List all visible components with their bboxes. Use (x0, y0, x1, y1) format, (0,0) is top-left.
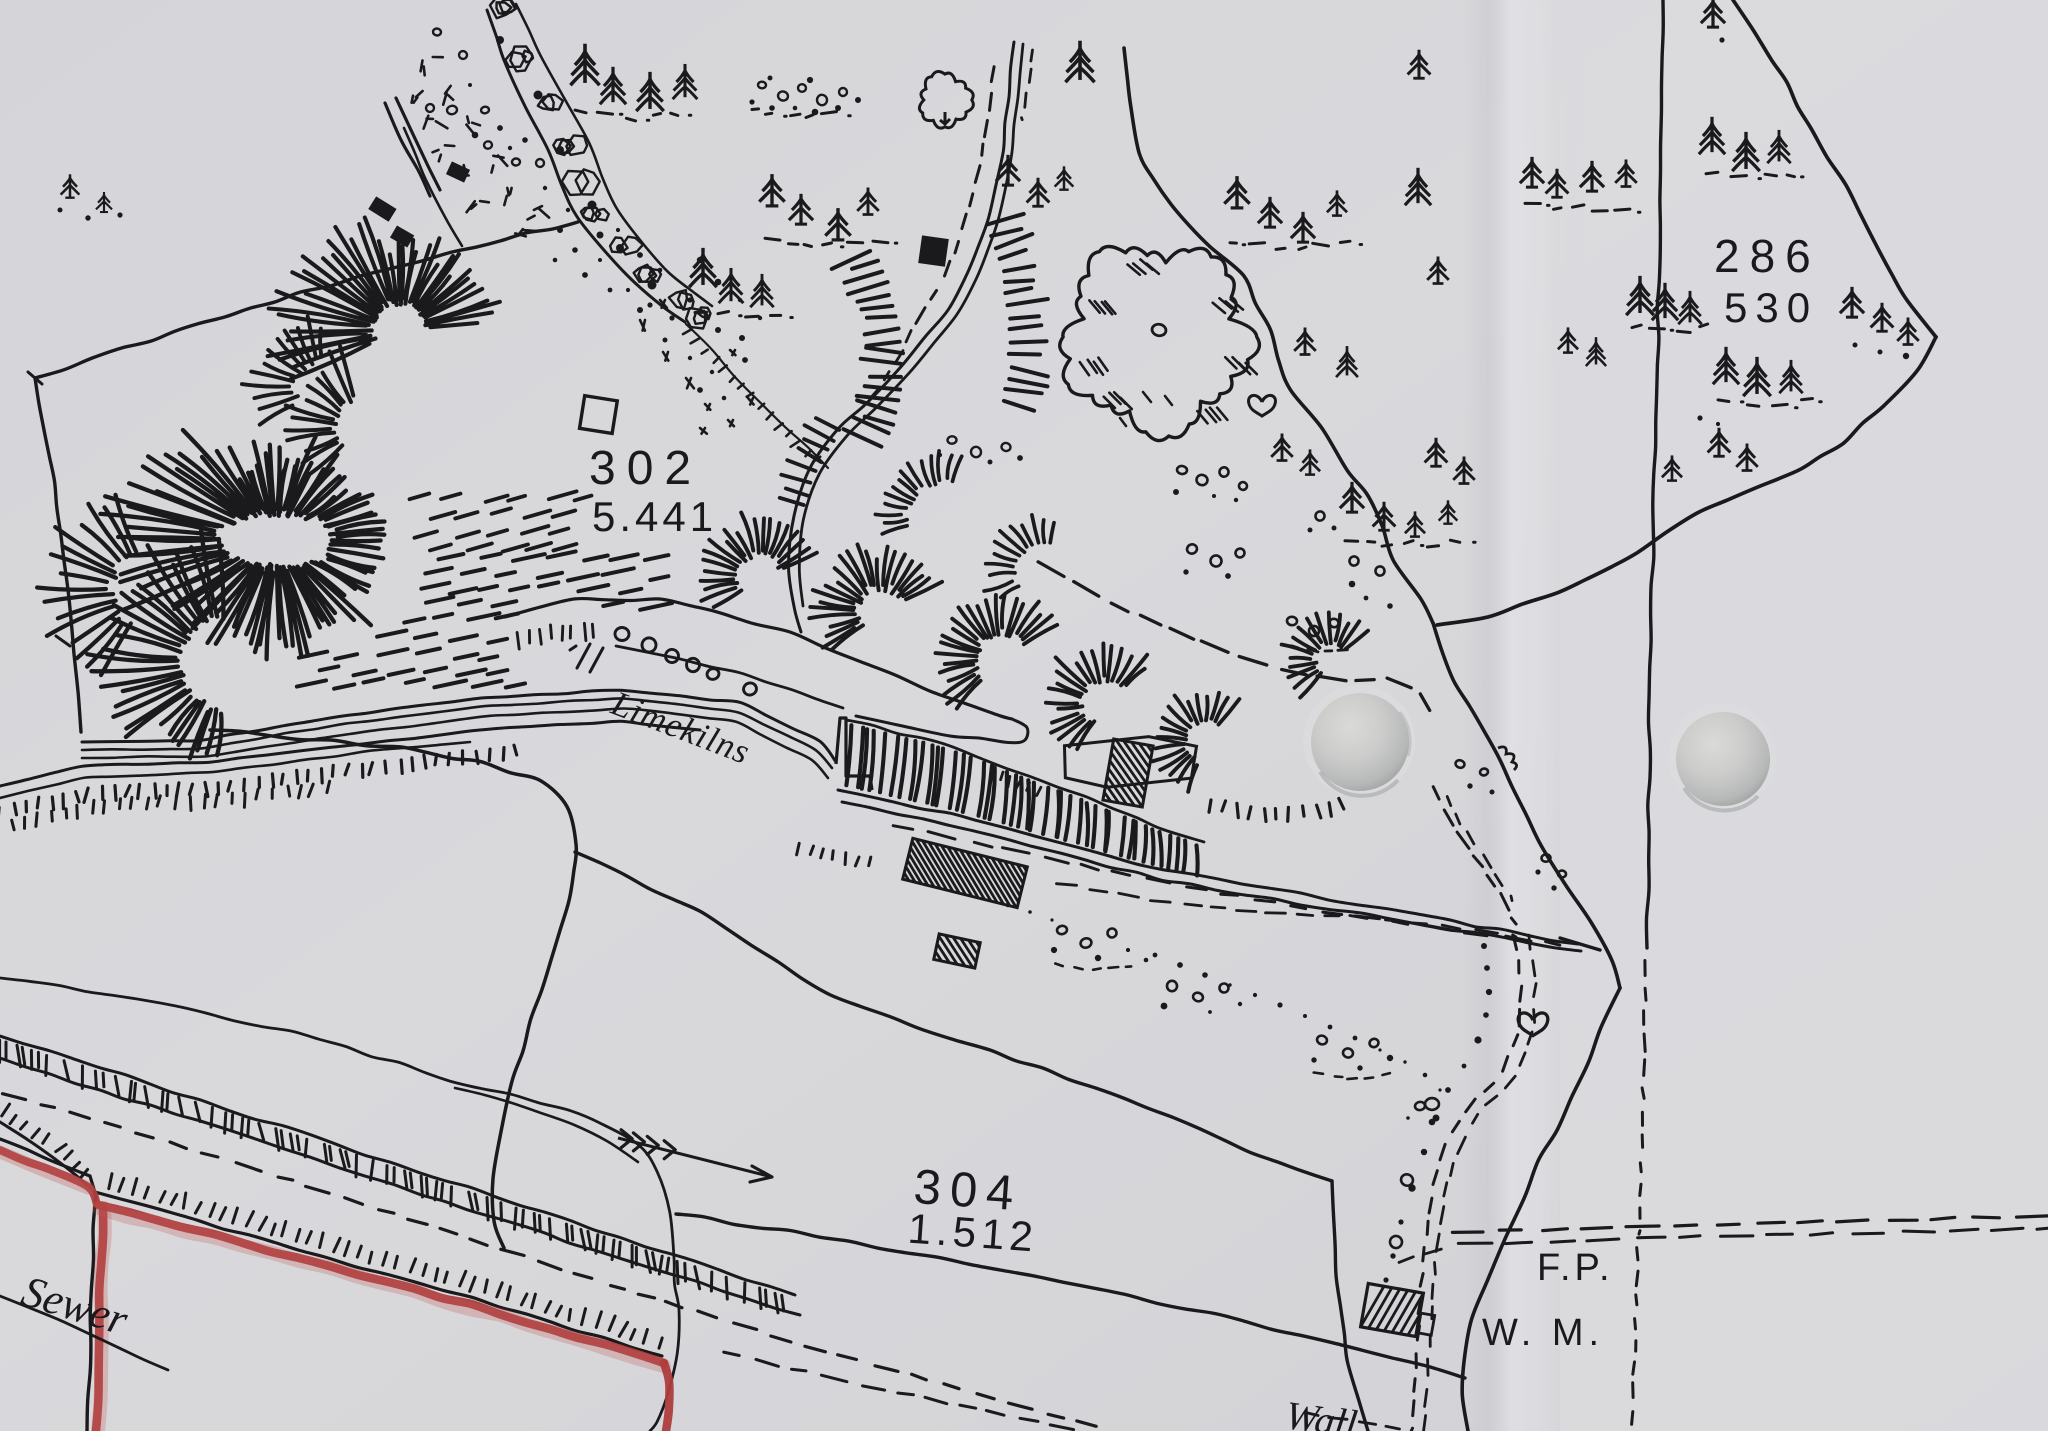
svg-text:286: 286 (1714, 230, 1821, 282)
svg-text:5.441: 5.441 (592, 493, 717, 540)
svg-text:1.512: 1.512 (906, 1205, 1039, 1261)
svg-text:530: 530 (1724, 284, 1818, 331)
svg-text:F.P.: F.P. (1537, 1247, 1614, 1289)
svg-text:W. M.: W. M. (1482, 1312, 1604, 1354)
svg-text:302: 302 (589, 442, 702, 495)
